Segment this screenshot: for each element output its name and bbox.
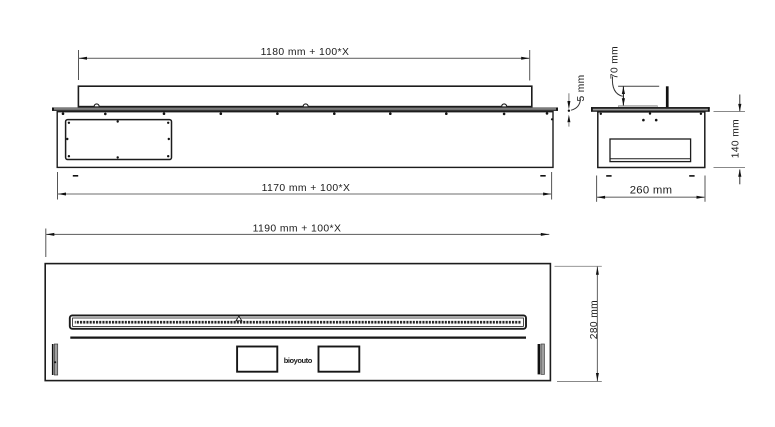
svg-text:140 mm: 140 mm [730, 119, 741, 158]
svg-text:280 mm: 280 mm [589, 300, 600, 339]
svg-text:5 mm: 5 mm [576, 74, 587, 101]
svg-text:1180 mm + 100*X: 1180 mm + 100*X [261, 47, 350, 58]
svg-text:1190 mm + 100*X: 1190 mm + 100*X [253, 223, 342, 234]
svg-text:1170 mm + 100*X: 1170 mm + 100*X [262, 183, 351, 194]
svg-text:bioyouto: bioyouto [284, 356, 313, 365]
svg-text:260 mm: 260 mm [630, 184, 673, 196]
svg-text:70 mm: 70 mm [609, 46, 620, 79]
